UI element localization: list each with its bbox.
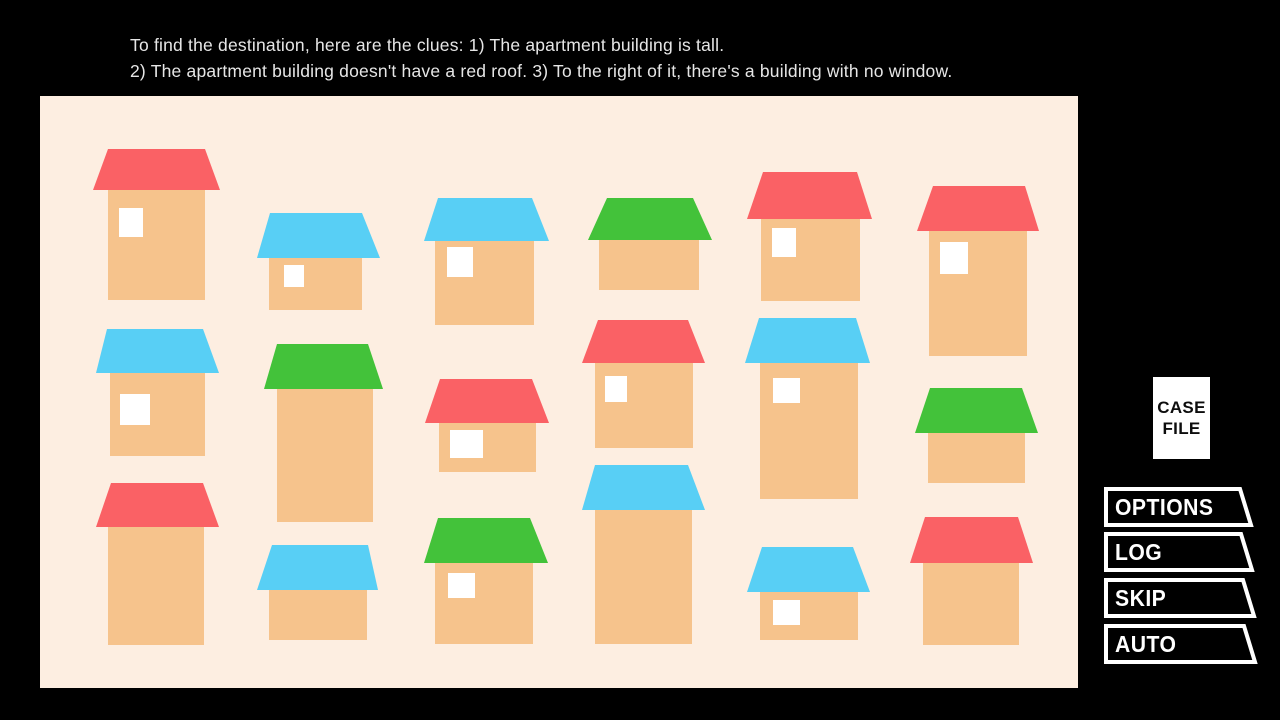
building-body	[277, 389, 373, 522]
game-stage: To find the destination, here are the cl…	[0, 0, 1280, 720]
building-window	[119, 208, 143, 237]
building-window	[284, 265, 304, 287]
building-r3c5[interactable]	[747, 547, 870, 640]
building-r3c3[interactable]	[424, 518, 548, 644]
building-roof-red	[747, 172, 872, 219]
menu-button-label: SKIP	[1115, 585, 1166, 612]
building-roof-green	[264, 344, 383, 389]
building-roof-red	[93, 149, 220, 190]
building-roof-blue	[424, 198, 549, 241]
building-roof-blue	[745, 318, 870, 363]
case-file-button[interactable]: CASE FILE	[1153, 377, 1210, 459]
building-r2c5-tall[interactable]	[745, 318, 870, 499]
building-window	[940, 242, 968, 274]
case-file-label-line2: FILE	[1153, 418, 1210, 439]
building-r2c4[interactable]	[582, 320, 705, 448]
building-window	[772, 228, 796, 257]
building-r3c2[interactable]	[257, 545, 378, 640]
menu-button-options[interactable]: OPTIONS	[1104, 487, 1257, 529]
building-body	[599, 240, 699, 290]
building-roof-blue	[96, 329, 219, 373]
building-r2c2-tall[interactable]	[264, 344, 383, 522]
menu-button-label: OPTIONS	[1115, 494, 1213, 521]
menu-button-auto[interactable]: AUTO	[1104, 624, 1261, 666]
building-roof-red	[917, 186, 1039, 231]
building-window	[605, 376, 627, 402]
building-window	[450, 430, 483, 458]
menu-button-skip[interactable]: SKIP	[1104, 578, 1260, 620]
building-roof-green	[915, 388, 1038, 433]
building-roof-green	[424, 518, 548, 563]
building-r2c6[interactable]	[915, 388, 1038, 483]
building-r1c1[interactable]	[93, 149, 220, 300]
clue-line-2: 2) The apartment building doesn't have a…	[130, 59, 952, 85]
menu-button-label: AUTO	[1115, 631, 1176, 658]
building-window	[773, 600, 800, 625]
building-r1c6-tall[interactable]	[917, 186, 1039, 356]
building-body	[269, 258, 362, 310]
building-window	[120, 394, 150, 425]
building-roof-blue	[257, 545, 378, 590]
building-body	[923, 563, 1019, 645]
menu-button-label: LOG	[1115, 539, 1162, 566]
building-window	[447, 247, 473, 277]
clue-text: To find the destination, here are the cl…	[130, 33, 952, 84]
building-roof-red	[96, 483, 219, 527]
building-body	[108, 190, 205, 300]
building-roof-blue	[582, 465, 705, 510]
menu-button-log[interactable]: LOG	[1104, 532, 1258, 574]
building-r1c3[interactable]	[424, 198, 549, 325]
scene-panel	[40, 96, 1078, 688]
building-r3c1-tall[interactable]	[96, 483, 219, 645]
building-r2c3[interactable]	[425, 379, 549, 472]
building-roof-blue	[257, 213, 380, 258]
building-roof-red	[582, 320, 705, 363]
building-r1c4[interactable]	[588, 198, 712, 290]
building-body	[928, 433, 1025, 483]
building-r1c5[interactable]	[747, 172, 872, 301]
building-roof-red	[425, 379, 549, 423]
building-body	[269, 590, 367, 640]
building-roof-blue	[747, 547, 870, 592]
building-window	[448, 573, 475, 598]
building-r3c6[interactable]	[910, 517, 1033, 645]
building-window	[773, 378, 800, 403]
building-body	[595, 510, 692, 644]
building-r2c1[interactable]	[96, 329, 219, 456]
building-r1c2[interactable]	[257, 213, 380, 310]
building-body	[108, 527, 204, 645]
case-file-label-line1: CASE	[1153, 397, 1210, 418]
clue-line-1: To find the destination, here are the cl…	[130, 33, 952, 59]
building-roof-red	[910, 517, 1033, 563]
building-roof-green	[588, 198, 712, 240]
building-r3c4-tall[interactable]	[582, 465, 705, 644]
